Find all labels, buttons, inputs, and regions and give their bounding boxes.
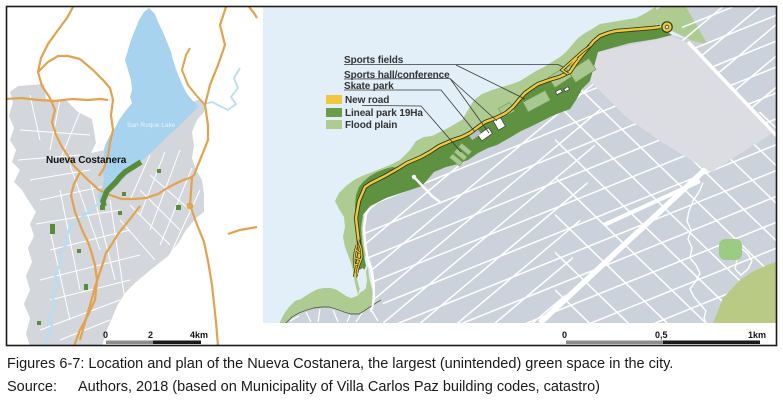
- svg-text:4km: 4km: [190, 330, 208, 340]
- svg-text:Lineal park 19Ha: Lineal park 19Ha: [345, 108, 423, 119]
- svg-text:0,5: 0,5: [655, 330, 668, 340]
- svg-text:0: 0: [103, 330, 108, 340]
- svg-text:Sports hall/conference: Sports hall/conference: [344, 70, 450, 81]
- svg-text:1km: 1km: [748, 330, 766, 340]
- svg-text:0: 0: [562, 330, 567, 340]
- svg-text:Skate park: Skate park: [344, 81, 394, 92]
- svg-text:San Roque Lake: San Roque Lake: [127, 122, 176, 129]
- svg-text:Sports fields: Sports fields: [344, 55, 404, 66]
- svg-text:New road: New road: [345, 95, 389, 106]
- svg-text:Flood plain: Flood plain: [345, 120, 397, 131]
- svg-text:2: 2: [148, 330, 153, 340]
- svg-text:Nueva Costanera: Nueva Costanera: [46, 155, 127, 166]
